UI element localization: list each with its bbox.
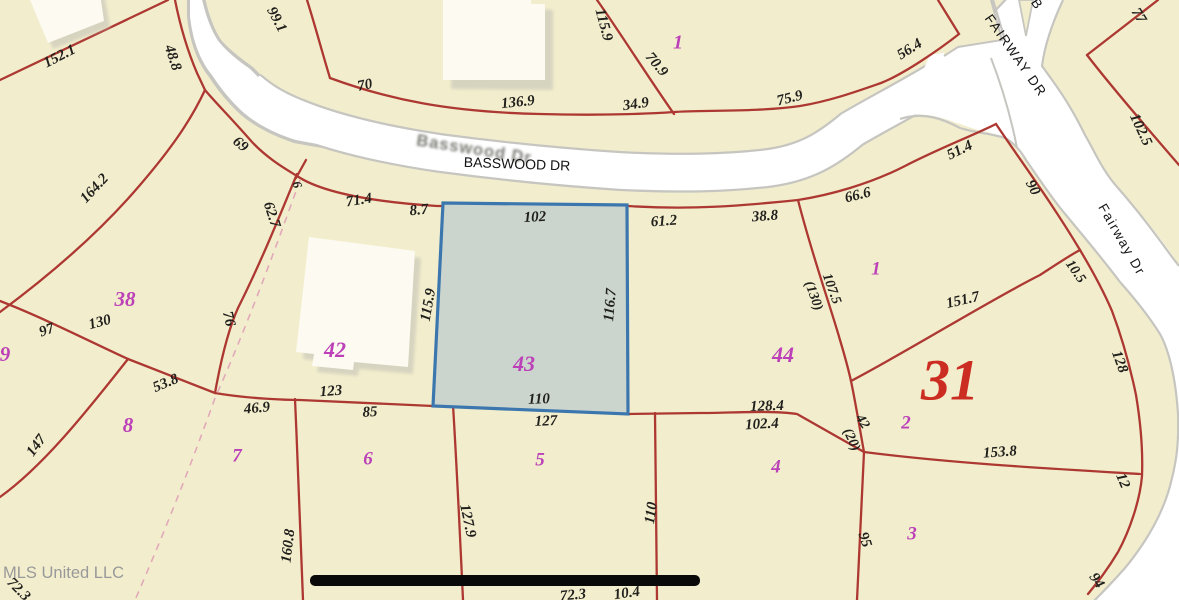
svg-text:7: 7 <box>232 445 243 466</box>
svg-text:1: 1 <box>871 258 881 279</box>
svg-text:110: 110 <box>528 391 551 408</box>
svg-text:123: 123 <box>319 383 343 401</box>
svg-text:8.7: 8.7 <box>409 201 430 219</box>
svg-text:110: 110 <box>642 501 661 525</box>
svg-text:42: 42 <box>323 337 346 362</box>
svg-text:8: 8 <box>123 413 134 437</box>
svg-text:46.9: 46.9 <box>242 399 271 417</box>
svg-text:6: 6 <box>363 448 373 469</box>
svg-text:4: 4 <box>770 456 781 477</box>
svg-text:5: 5 <box>535 449 545 470</box>
svg-text:10.4: 10.4 <box>613 584 642 600</box>
svg-text:85: 85 <box>362 404 378 421</box>
svg-text:MLS United LLC: MLS United LLC <box>3 564 124 582</box>
svg-text:116.7: 116.7 <box>601 287 620 322</box>
svg-text:31: 31 <box>920 347 979 412</box>
svg-text:128.4: 128.4 <box>750 398 785 415</box>
svg-text:43: 43 <box>512 351 535 376</box>
svg-text:61.2: 61.2 <box>650 213 678 231</box>
svg-text:3: 3 <box>906 523 917 544</box>
svg-text:2: 2 <box>900 412 911 433</box>
svg-text:38.8: 38.8 <box>750 208 779 226</box>
svg-text:9: 9 <box>0 342 11 366</box>
svg-text:72.3: 72.3 <box>559 586 587 600</box>
svg-text:1: 1 <box>673 32 683 54</box>
svg-text:127: 127 <box>534 413 558 430</box>
svg-text:38: 38 <box>114 287 137 311</box>
svg-text:153.8: 153.8 <box>983 443 1018 461</box>
svg-text:44: 44 <box>771 342 794 367</box>
svg-text:102.4: 102.4 <box>745 416 780 434</box>
svg-text:102: 102 <box>523 209 547 226</box>
